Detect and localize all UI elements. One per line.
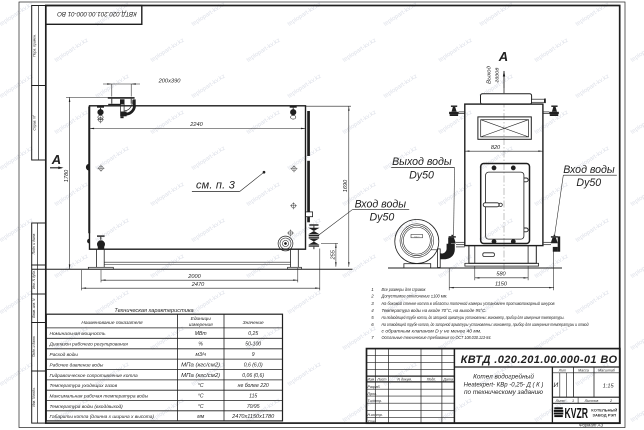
svg-text:Выход: Выход <box>487 65 493 83</box>
svg-text:Температура уходящих газов: Температура уходящих газов <box>50 383 118 389</box>
svg-text:Утв.: Утв. <box>368 419 376 423</box>
svg-text:м3/ч: м3/ч <box>196 352 207 358</box>
svg-text:с обратным клапаном D у не ме: с обратным клапаном D у не менее 40 мм. <box>382 328 482 333</box>
svg-text:0,6 (6,0): 0,6 (6,0) <box>244 362 263 368</box>
svg-text:Вход воды: Вход воды <box>355 198 407 210</box>
svg-text:МПа (кгс/см2): МПа (кгс/см2) <box>181 373 220 379</box>
svg-text:Инв. N подл.: Инв. N подл. <box>32 387 36 406</box>
svg-text:Остальные технические требован: Остальные технические требования по ОСТ … <box>382 335 492 340</box>
svg-text:Взам. инв. N: Взам. инв. N <box>32 298 36 318</box>
svg-text:Выход воды: Выход воды <box>392 156 452 168</box>
svg-text:%: % <box>198 342 203 348</box>
svg-text:измерения: измерения <box>189 323 213 328</box>
svg-text:Рабочее давление воды: Рабочее давление воды <box>50 362 104 368</box>
svg-text:1780: 1780 <box>64 169 70 182</box>
svg-text:Номинальная мощность: Номинальная мощность <box>50 331 107 337</box>
svg-text:КВЦЗ: КВЦЗ <box>414 236 420 238</box>
svg-text:Изм: Изм <box>367 378 374 382</box>
svg-text:255: 255 <box>330 249 336 260</box>
svg-text:КВТД.020.201.00.000-01 ВО: КВТД.020.201.00.000-01 ВО <box>57 10 137 17</box>
svg-text:А: А <box>498 49 508 64</box>
svg-text:0,06 (0,6): 0,06 (0,6) <box>242 373 264 379</box>
svg-text:2: 2 <box>370 294 374 299</box>
svg-text:МПа (кгс/см2): МПа (кгс/см2) <box>181 362 220 368</box>
svg-text:Подп. и дата: Подп. и дата <box>32 234 36 255</box>
svg-text:Dy50: Dy50 <box>370 212 395 224</box>
svg-text:Dy50: Dy50 <box>576 177 601 189</box>
svg-text:1690: 1690 <box>343 179 349 192</box>
svg-text:Масса: Масса <box>578 369 589 373</box>
svg-text:1: 1 <box>572 399 574 403</box>
svg-text:Heatexpert- КВр -0,25- Д ( К ): Heatexpert- КВр -0,25- Д ( К ) <box>464 382 544 388</box>
svg-text:Лист: Лист <box>376 378 386 382</box>
svg-text:Н.контр.: Н.контр. <box>368 413 383 417</box>
svg-text:Т.контр.: Т.контр. <box>368 399 383 403</box>
svg-text:А: А <box>51 152 61 167</box>
svg-text:КВТД .020.201.00.000-01 ВО: КВТД .020.201.00.000-01 ВО <box>461 354 618 366</box>
svg-text:Габариты котла (длинна х ширин: Габариты котла (длинна х ширина х высота… <box>50 414 155 420</box>
svg-text:Гидравлическое сопротивление к: Гидравлическое сопротивление котла <box>50 373 138 379</box>
svg-text:МВт: МВт <box>195 331 207 337</box>
svg-text:газов: газов <box>495 67 501 82</box>
svg-text:Пров.: Пров. <box>368 392 377 396</box>
svg-text:2240: 2240 <box>189 122 203 128</box>
svg-text:Разраб.: Разраб. <box>368 385 381 389</box>
svg-text:KVZR: KVZR <box>565 406 589 422</box>
svg-text:°С: °С <box>198 404 204 410</box>
svg-text:На отводящей трубе котла, до з: На отводящей трубе котла, до запорной ар… <box>382 322 589 327</box>
svg-text:Лист: Лист <box>555 399 566 403</box>
svg-text:по техническому заданию: по техническому заданию <box>464 388 543 396</box>
svg-text:0,25: 0,25 <box>248 331 258 337</box>
svg-text:1150: 1150 <box>495 281 508 287</box>
svg-text:580: 580 <box>496 272 506 278</box>
svg-text:°С: °С <box>198 394 204 400</box>
svg-text:Инв. N дубл.: Инв. N дубл. <box>32 270 36 289</box>
svg-text:50-100: 50-100 <box>245 342 261 348</box>
svg-text:см. п. 3: см. п. 3 <box>196 179 236 191</box>
svg-text:N докум.: N докум. <box>397 378 412 382</box>
svg-text:Dy50: Dy50 <box>409 169 434 181</box>
svg-text:Справ. N°: Справ. N° <box>33 114 37 130</box>
svg-text:Масштаб: Масштаб <box>598 369 616 373</box>
svg-text:Наименование показателя: Наименование показателя <box>81 320 143 326</box>
svg-text:Формат А3: Формат А3 <box>579 423 604 428</box>
svg-text:Подп. и дата: Подп. и дата <box>32 336 36 357</box>
svg-text:115: 115 <box>249 394 257 400</box>
svg-text:Техническая характеристика: Техническая характеристика <box>114 308 193 314</box>
svg-text:Листов: Листов <box>584 399 599 403</box>
svg-text:200х390: 200х390 <box>158 79 182 85</box>
svg-text:9: 9 <box>252 352 255 358</box>
svg-text:ЗАВОД РЭП: ЗАВОД РЭП <box>593 413 617 418</box>
svg-text:Котел водогрейный: Котел водогрейный <box>473 373 534 381</box>
svg-text:Максимальная рабочая температу: Максимальная рабочая температура воды <box>50 394 149 400</box>
svg-text:Расход воды: Расход воды <box>50 352 79 358</box>
svg-text:1:15: 1:15 <box>603 383 615 389</box>
svg-text:мм: мм <box>197 414 204 420</box>
svg-text:Допустимое отклонение ±100 мм: Допустимое отклонение ±100 мм. <box>381 294 448 299</box>
svg-text:Вход воды: Вход воды <box>563 164 615 176</box>
svg-text:На боковой стенке котла в обла: На боковой стенке котла в области топочн… <box>382 301 556 306</box>
svg-text:°С: °С <box>198 383 204 389</box>
svg-text:820: 820 <box>491 145 501 151</box>
svg-text:2470х1150х1780: 2470х1150х1780 <box>231 414 274 420</box>
svg-text:Перв. примен.: Перв. примен. <box>33 34 37 57</box>
svg-text:70/95: 70/95 <box>247 404 260 410</box>
svg-text:Все размеры для справок: Все размеры для справок <box>382 287 427 292</box>
svg-text:не более 220: не более 220 <box>238 383 269 389</box>
svg-text:Температура воды на входе 70°: Температура воды на входе 70°С, на выход… <box>382 308 487 313</box>
svg-text:Лит: Лит <box>558 369 566 373</box>
svg-text:Единицы: Единицы <box>191 316 212 322</box>
svg-text:2470: 2470 <box>191 282 205 288</box>
svg-text:Дата: Дата <box>442 378 452 382</box>
svg-text:Температура воды (вход/выход): Температура воды (вход/выход) <box>50 404 124 410</box>
svg-text:2000: 2000 <box>187 274 201 280</box>
svg-text:Диапазон рабочего регулировани: Диапазон рабочего регулирования <box>49 342 129 348</box>
svg-text:Подп.: Подп. <box>427 378 437 382</box>
svg-text:И: И <box>553 382 558 389</box>
svg-text:Значение: Значение <box>243 320 264 326</box>
svg-text:На подводящей трубе котла, до: На подводящей трубе котла, до запорной а… <box>382 315 565 320</box>
